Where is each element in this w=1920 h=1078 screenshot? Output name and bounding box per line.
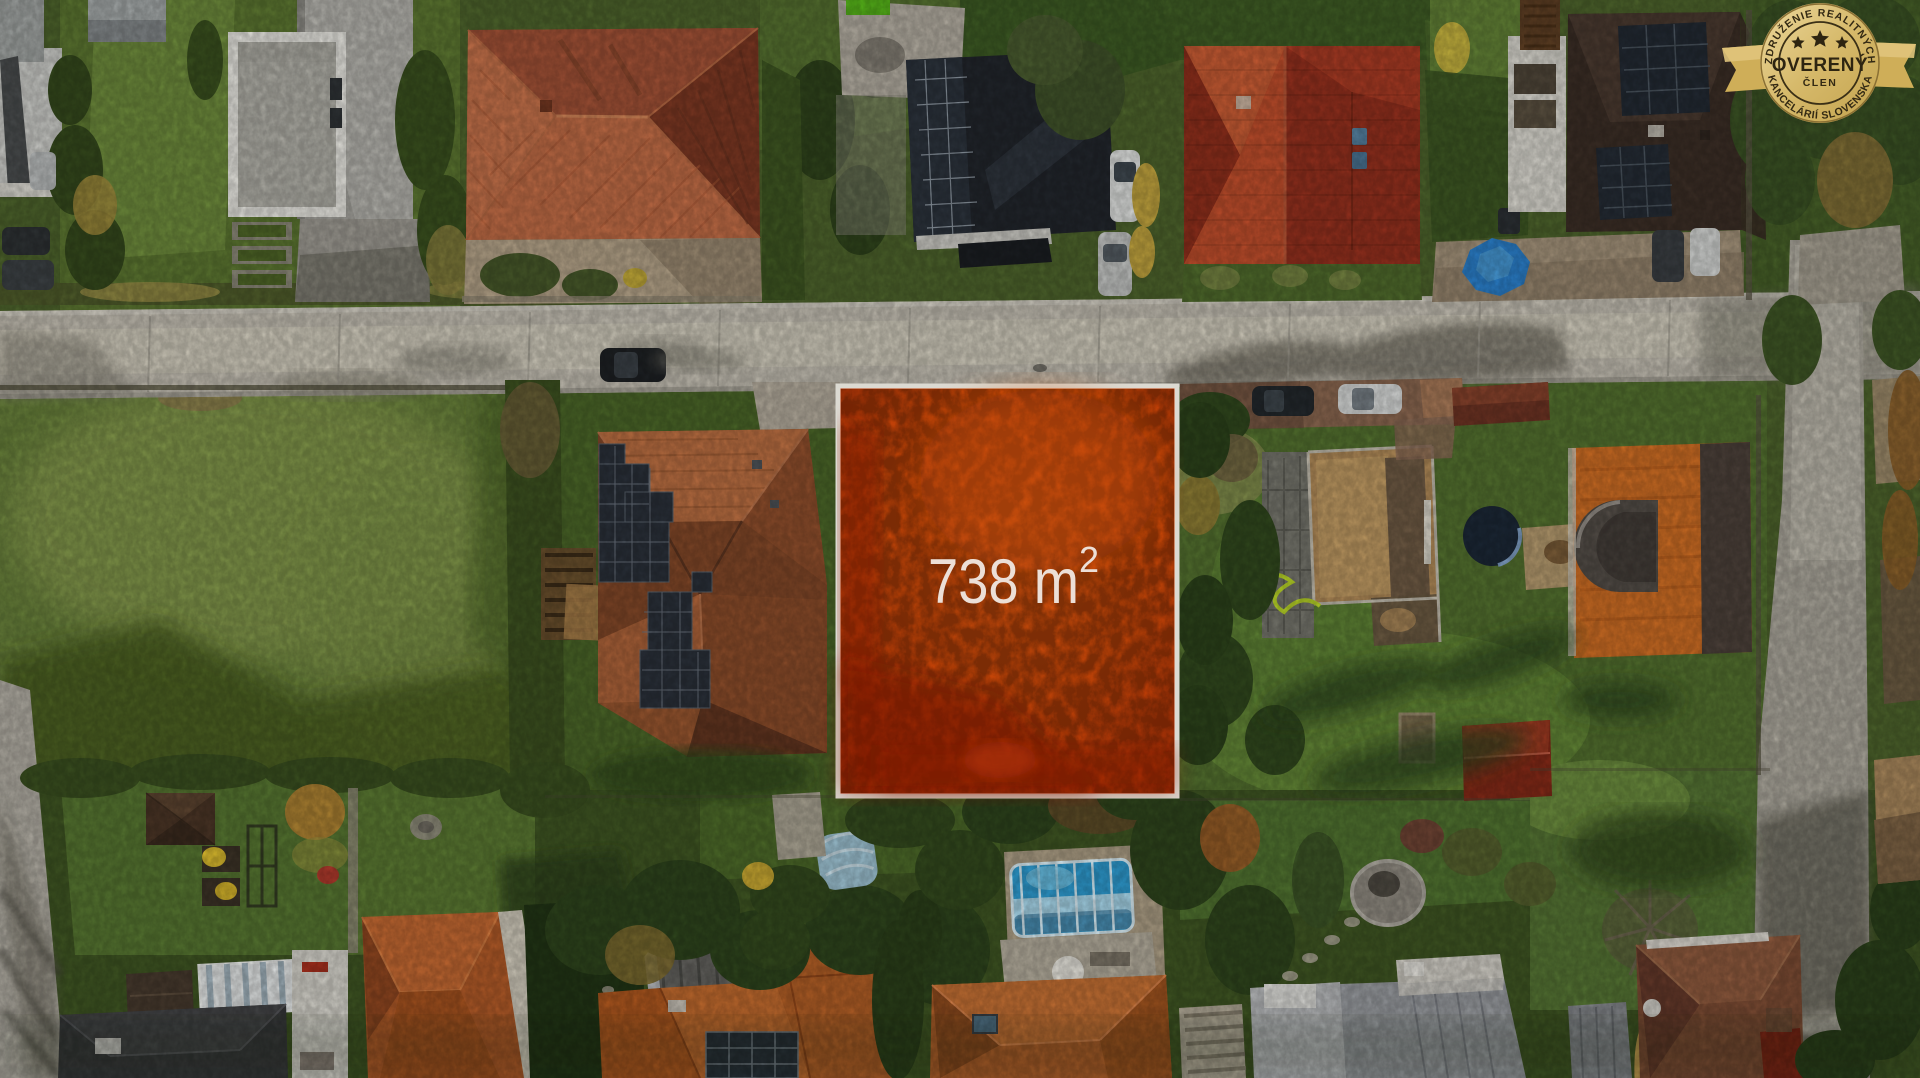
svg-text:738 m: 738 m (928, 547, 1079, 617)
svg-text:ČLEN: ČLEN (1803, 76, 1838, 89)
svg-text:OVERENÝ: OVERENÝ (1772, 54, 1868, 76)
svg-text:2: 2 (1079, 539, 1099, 580)
